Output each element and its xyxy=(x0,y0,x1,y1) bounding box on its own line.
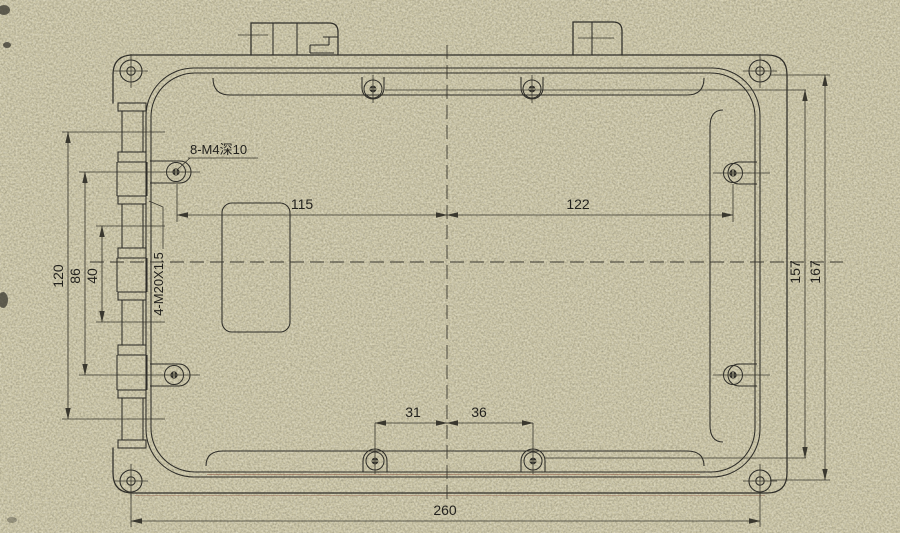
drawing-sheet: 115 122 31 36 260 120 86 40 157 167 8-M4… xyxy=(0,0,900,533)
dim-36-label: 36 xyxy=(471,404,487,420)
dim-115-label: 115 xyxy=(291,196,314,212)
dim-31-label: 31 xyxy=(405,404,421,420)
dim-157-label: 157 xyxy=(787,260,803,284)
dim-40-label: 40 xyxy=(84,268,100,284)
dim-122-label: 122 xyxy=(566,196,590,212)
m20-note-label: 4-M20X1.5 xyxy=(151,252,166,316)
dim-86-label: 86 xyxy=(67,268,83,284)
paper-texture-light xyxy=(0,0,900,533)
enclosure-drawing: 115 122 31 36 260 120 86 40 157 167 8-M4… xyxy=(0,0,900,533)
m4-note-label: 8-M4深10 xyxy=(190,142,247,157)
dim-260-label: 260 xyxy=(433,502,457,518)
dim-167-label: 167 xyxy=(807,260,823,284)
dim-120-label: 120 xyxy=(50,264,66,288)
